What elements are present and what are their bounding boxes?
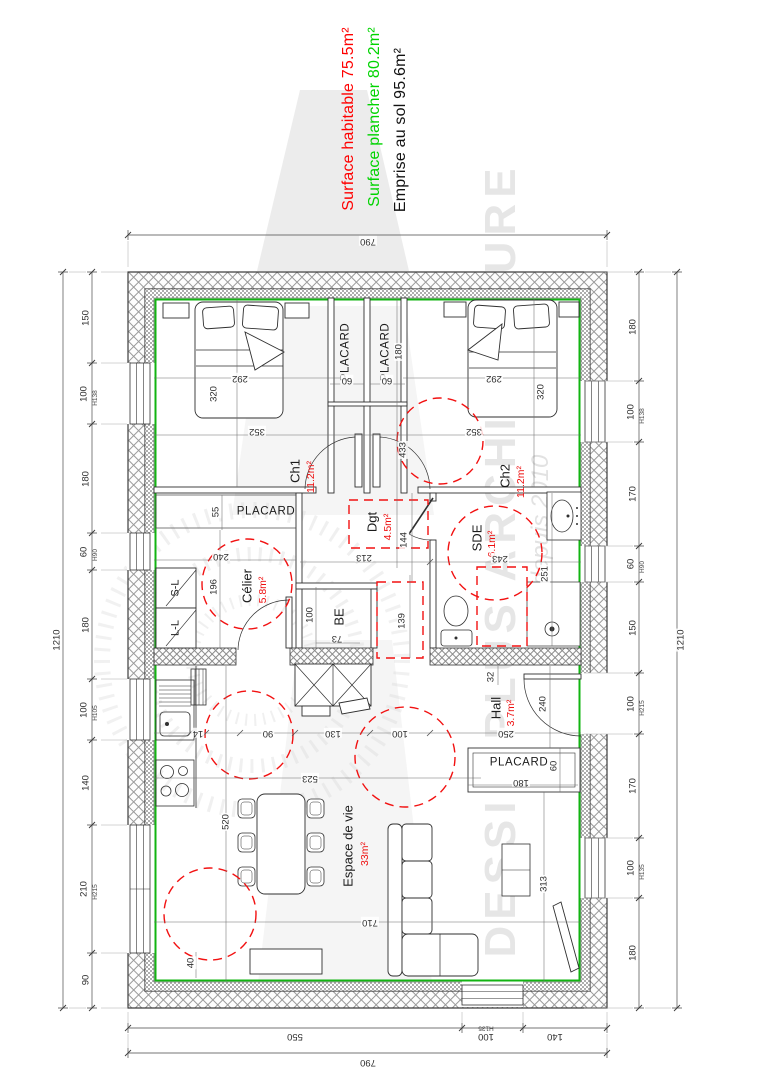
front-door-opening bbox=[580, 673, 608, 734]
bed-ch2 bbox=[444, 300, 579, 417]
floor-plan-page: { "title_block": { "lines": [ {"text": "… bbox=[0, 0, 768, 1086]
tv-console bbox=[250, 949, 322, 974]
kitchen-stove bbox=[156, 760, 194, 806]
watermark-logo: DESSIN PLUS ARCHITECTURE depuis 2010 bbox=[102, 90, 554, 1000]
window-right-1 bbox=[580, 381, 608, 442]
mirror bbox=[553, 902, 579, 972]
dining-table bbox=[238, 794, 324, 894]
window-left-2 bbox=[127, 533, 155, 570]
window-left-1 bbox=[127, 363, 155, 424]
drawing-stage: DESSIN PLUS ARCHITECTURE depuis 2010 bbox=[0, 0, 768, 1086]
window-right-2 bbox=[580, 546, 608, 582]
vanity bbox=[527, 582, 580, 646]
laundry-machines bbox=[156, 568, 196, 648]
toilet bbox=[444, 596, 468, 626]
door-entrance bbox=[524, 674, 581, 736]
window-right-3 bbox=[580, 838, 608, 898]
door-cellier bbox=[238, 597, 292, 650]
placard-hall bbox=[468, 748, 580, 792]
sofa bbox=[388, 824, 478, 976]
window-left-3 bbox=[127, 679, 155, 740]
interior-structural-walls bbox=[154, 648, 581, 665]
floor-plan-drawing: DESSIN PLUS ARCHITECTURE depuis 2010 bbox=[0, 0, 768, 1086]
window-left-bay bbox=[127, 825, 155, 953]
window-bottom bbox=[462, 981, 523, 1007]
